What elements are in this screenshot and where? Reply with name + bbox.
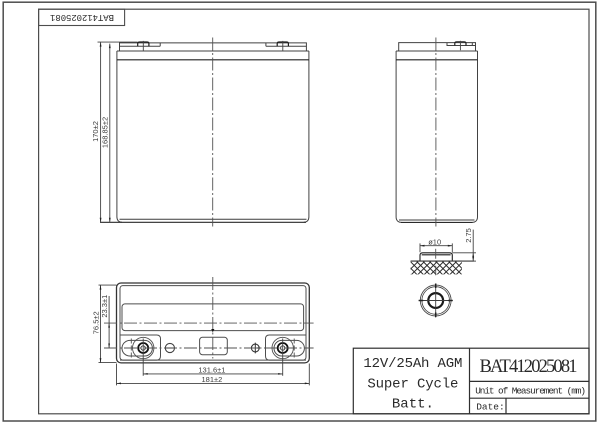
svg-text:2.75: 2.75: [464, 228, 473, 243]
svg-text:Super Cycle: Super Cycle: [367, 376, 458, 392]
svg-text:Date:: Date:: [476, 402, 505, 413]
svg-text:ø10: ø10: [428, 238, 441, 247]
svg-text:Unit of Measurement (mm): Unit of Measurement (mm): [475, 385, 586, 396]
svg-text:Batt.: Batt.: [392, 397, 434, 413]
svg-text:170±2: 170±2: [91, 121, 100, 142]
svg-text:131.6±1: 131.6±1: [198, 365, 225, 374]
svg-text:BAT412025081: BAT412025081: [50, 12, 114, 22]
svg-text:12V/25Ah AGM: 12V/25Ah AGM: [363, 356, 462, 372]
svg-text:181±2: 181±2: [201, 375, 222, 384]
svg-text:BAT412025081: BAT412025081: [480, 357, 578, 377]
svg-text:168.85±2: 168.85±2: [100, 117, 109, 148]
svg-text:23.3±1: 23.3±1: [100, 295, 109, 318]
